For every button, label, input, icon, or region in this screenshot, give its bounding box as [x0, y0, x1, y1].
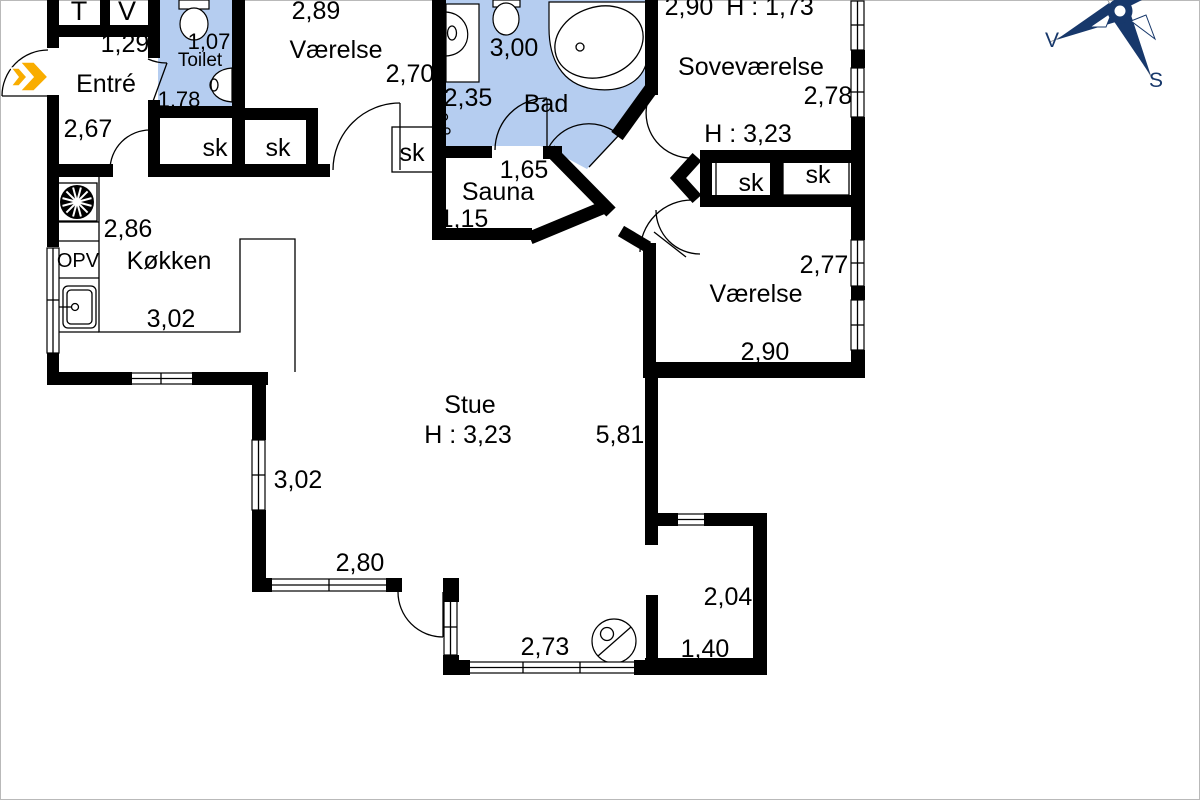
toilet-label: Toilet — [178, 50, 223, 71]
entre-dim-top: 1,29 — [101, 30, 150, 58]
window — [252, 440, 265, 510]
closet-label: sk — [400, 139, 426, 167]
closet-label: sk — [203, 134, 229, 162]
bad-dim-top: 3,00 — [490, 34, 539, 62]
closet-label: sk — [266, 134, 292, 162]
entrance-arrow-icon — [11, 62, 48, 91]
entre-label: Entré — [76, 70, 136, 98]
stue-ceiling-height: H : 3,23 — [424, 421, 512, 449]
kitchen-door — [110, 130, 150, 170]
koekken-dim-bottom: 3,02 — [147, 305, 196, 333]
sove-dim-right: 2,78 — [804, 82, 853, 110]
sauna-dim-left: 1,15 — [440, 205, 489, 233]
stue-dim-bottom-left: 2,80 — [336, 549, 385, 577]
wood-stove-icon — [592, 619, 636, 663]
hall-double-door-upper — [646, 104, 692, 158]
cooktop-fan-icon — [58, 183, 97, 221]
compass-west-label: V — [1045, 29, 1059, 52]
compass-south-label: S — [1149, 69, 1163, 92]
stue-dim-left: 3,02 — [274, 466, 323, 494]
labels: T V 1,29 Entré 2,67 1,07 Toilet 1,78 sk … — [57, 0, 852, 663]
vaerelse-right-door — [656, 210, 700, 254]
vaerelse-right-dim-bottom: 2,90 — [741, 338, 790, 366]
dishwasher-label: OPV — [57, 250, 100, 272]
sauna-label: Sauna — [462, 178, 534, 206]
utility-t-label: T — [71, 0, 88, 26]
window — [851, 68, 864, 117]
window — [851, 1, 864, 50]
vaerelse-top-dim-right: 2,70 — [386, 60, 435, 88]
floorplan-drawing: V S T V 1,29 Entré 2,67 1,07 Toilet 1,78… — [0, 0, 1200, 800]
koekken-label: Køkken — [127, 247, 212, 275]
sove-ceiling-height: H : 1,73 — [726, 0, 814, 21]
vestibule-dim-width: 2,04 — [704, 583, 753, 611]
entre-dim-left: 2,67 — [64, 115, 113, 143]
window — [676, 514, 706, 525]
vaerelse-top-label: Værelse — [289, 36, 382, 64]
window — [130, 373, 193, 384]
window — [468, 662, 636, 673]
window — [851, 300, 864, 350]
closet-label: sk — [739, 169, 765, 197]
stue-dim-bottom: 2,73 — [521, 633, 570, 661]
vaerelse-right-label: Værelse — [709, 280, 802, 308]
stue-dim-right: 5,81 — [596, 421, 645, 449]
compass-icon: V S — [1045, 0, 1196, 92]
vaerelse-top-door — [333, 103, 400, 170]
sove-dim-top: 2,90 — [665, 0, 714, 21]
hall-ceiling-height: H : 3,23 — [704, 120, 792, 148]
stue-label: Stue — [444, 391, 495, 419]
sove-label: Soveværelse — [678, 53, 824, 81]
floorplan-page: V S T V 1,29 Entré 2,67 1,07 Toilet 1,78… — [0, 0, 1200, 800]
window — [851, 240, 864, 286]
bad-label: Bad — [524, 90, 568, 118]
bathroom-sink-icon — [446, 4, 479, 82]
vaerelse-right-dim-right: 2,77 — [800, 251, 849, 279]
bad-dim-left: 2,35 — [444, 84, 493, 112]
utility-v-label: V — [118, 0, 136, 26]
window — [444, 600, 457, 655]
closet-label: sk — [806, 161, 832, 189]
window — [270, 579, 388, 591]
vaerelse-top-dim-top: 2,89 — [292, 0, 341, 25]
koekken-dim-top: 2,86 — [104, 215, 153, 243]
vestibule-dim-depth: 1,40 — [681, 635, 730, 663]
toilet-dim-depth: 1,78 — [158, 87, 201, 112]
kitchen-sink-icon — [59, 286, 96, 328]
bathroom-toilet-icon — [493, 0, 520, 35]
stue-exit-door — [398, 592, 443, 637]
